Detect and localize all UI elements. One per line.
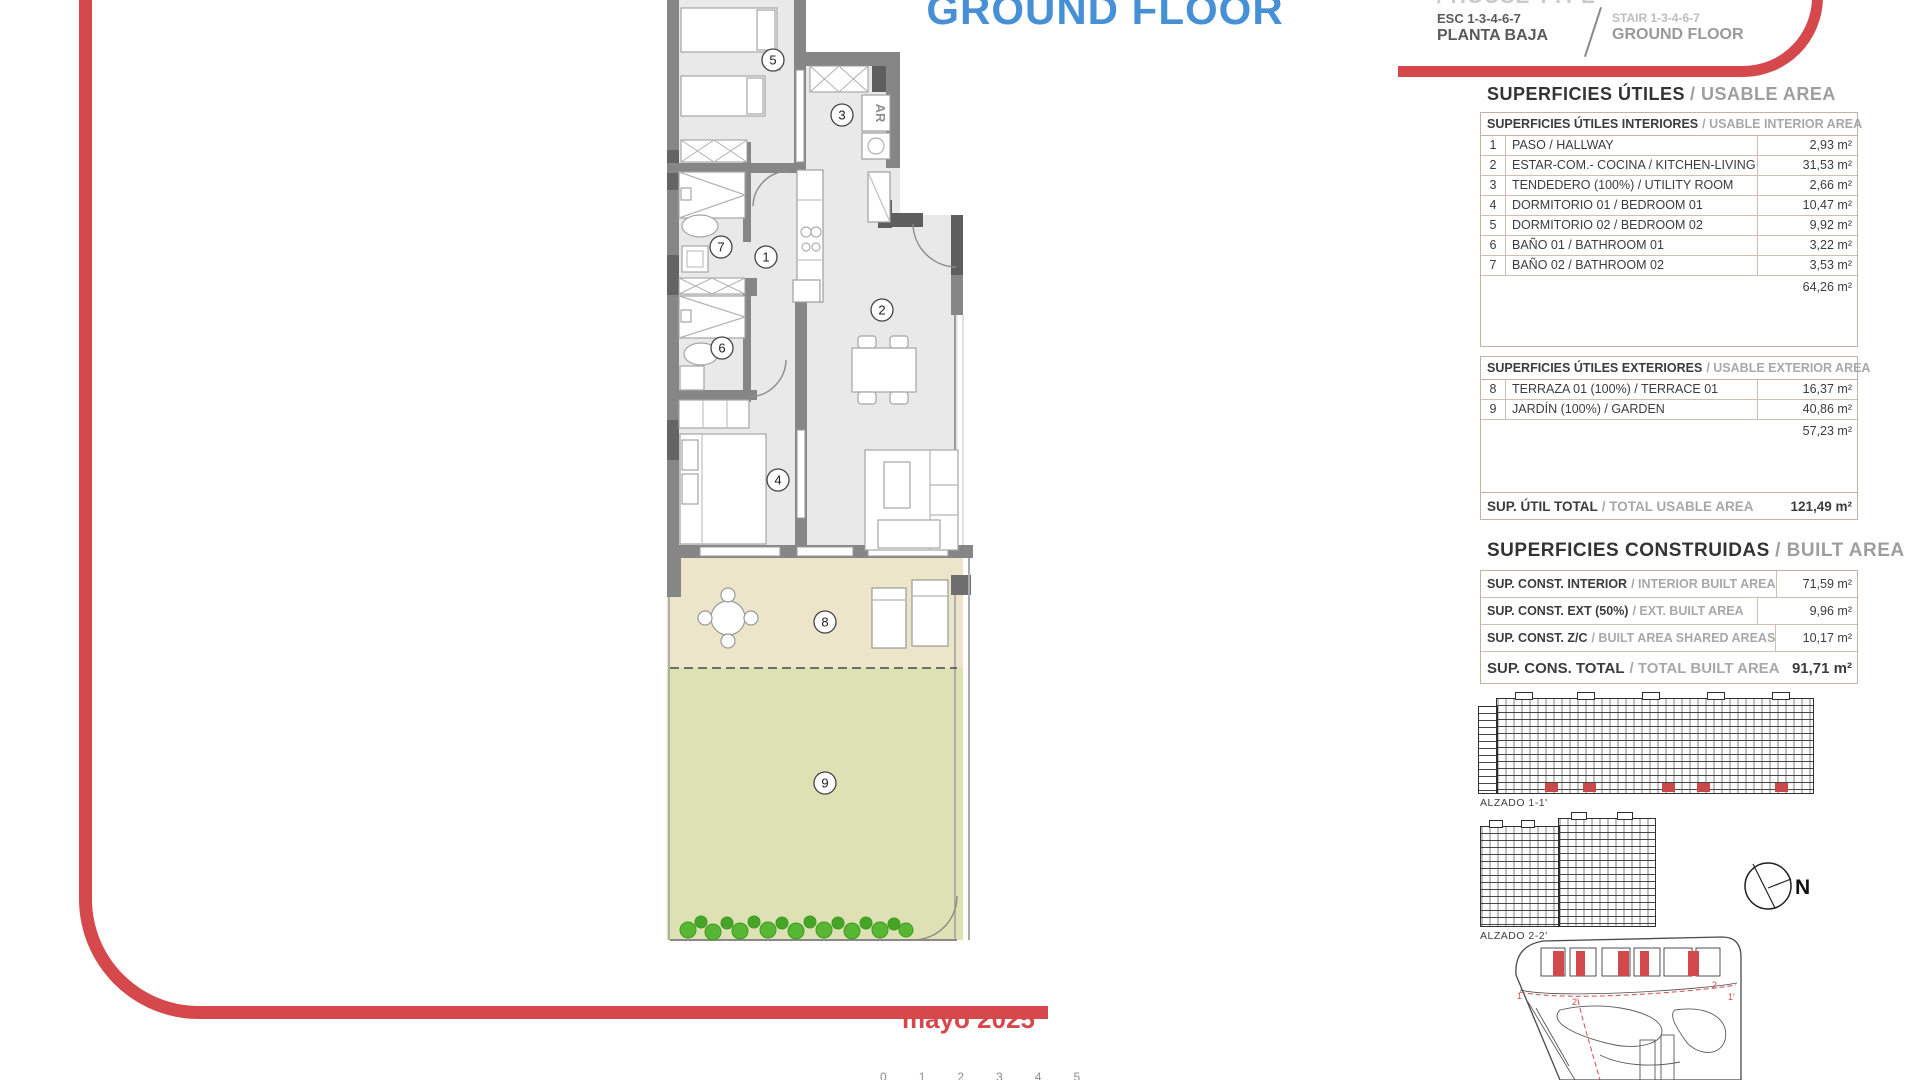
svg-text:1: 1 — [1517, 991, 1522, 1001]
table-row: SUP. CONST. EXT (50%)/ EXT. BUILT AREA9,… — [1481, 598, 1857, 625]
date-stamp: mayo 2025 — [790, 1004, 1035, 1035]
highlighted-unit — [1697, 783, 1710, 792]
appliance-label: AR — [873, 104, 888, 123]
north-label: N — [1795, 876, 1810, 899]
planta-baja-label: PLANTA BAJA — [1437, 27, 1548, 45]
svg-text:2': 2' — [1572, 997, 1579, 1007]
highlighted-unit — [1662, 783, 1675, 792]
table-row: 9JARDÍN (100%) / GARDEN40,86 m² — [1481, 400, 1857, 420]
elevation-1-label: ALZADO 1-1' — [1480, 797, 1548, 809]
exterior-subtotal: 57,23 m² — [1481, 420, 1857, 442]
stair-block-en: STAIR 1-3-4-6-7 GROUND FLOOR — [1612, 12, 1744, 44]
usable-interior-header: SUPERFICIES ÚTILES INTERIORES / USABLE I… — [1481, 113, 1857, 136]
table-row: 4DORMITORIO 01 / BEDROOM 0110,47 m² — [1481, 196, 1857, 216]
esc-label: ESC 1-3-4-6-7 — [1437, 12, 1548, 27]
elevation-1-facade — [1496, 698, 1814, 794]
table-row: 2ESTAR-COM.- COCINA / KITCHEN-LIVING31,5… — [1481, 156, 1857, 176]
built-total-row: SUP. CONS. TOTAL / TOTAL BUILT AREA 91,7… — [1481, 652, 1857, 685]
plan-sheet: 1B / HOUSE TYPE GROUND FLOOR ESC 1-3-4-6… — [0, 0, 1920, 1080]
usable-exterior-header: SUPERFICIES ÚTILES EXTERIORES / USABLE E… — [1481, 357, 1857, 380]
table-row: 8TERRAZA 01 (100%) / TERRACE 0116,37 m² — [1481, 380, 1857, 400]
svg-text:6: 6 — [718, 341, 725, 356]
north-compass-icon: N — [1735, 855, 1820, 917]
usable-exterior-table: SUPERFICIES ÚTILES EXTERIORES / USABLE E… — [1480, 356, 1858, 520]
stair-block-es: ESC 1-3-4-6-7 PLANTA BAJA — [1437, 12, 1548, 45]
table-row: SUP. CONST. INTERIOR/ INTERIOR BUILT ARE… — [1481, 571, 1857, 598]
built-area-heading: SUPERFICIES CONSTRUIDAS / BUILT AREA — [1487, 540, 1905, 562]
svg-text:1': 1' — [1728, 992, 1735, 1002]
table-row: 5DORMITORIO 02 / BEDROOM 029,92 m² — [1481, 216, 1857, 236]
site-plan: 1 2' 2 1' — [1500, 930, 1780, 1080]
house-type-label-cut: / HOUSE TYPE — [1437, 0, 1677, 9]
svg-text:2: 2 — [878, 303, 885, 318]
elevation-2-facade-left — [1480, 826, 1560, 927]
table-row: 3TENDEDERO (100%) / UTILITY ROOM2,66 m² — [1481, 176, 1857, 196]
usable-total-row: SUP. ÚTIL TOTAL / TOTAL USABLE AREA 121,… — [1481, 492, 1857, 519]
site-highlighted-units — [1553, 951, 1699, 976]
svg-text:2: 2 — [1712, 980, 1717, 990]
svg-text:1: 1 — [762, 250, 769, 265]
elevation-2-facade-right — [1558, 818, 1656, 927]
usable-area-heading: SUPERFICIES ÚTILES / USABLE AREA — [1487, 84, 1836, 105]
svg-text:9: 9 — [821, 776, 828, 791]
garden-area — [667, 668, 963, 940]
interior-subtotal: 64,26 m² — [1481, 276, 1857, 298]
svg-text:4: 4 — [774, 473, 781, 488]
table-row: SUP. CONST. Z/C/ BUILT AREA SHARED AREAS… — [1481, 625, 1857, 652]
scale-bar: 01 23 45 — [880, 1070, 1080, 1080]
floor-plan: AR — [640, 0, 985, 960]
svg-text:3: 3 — [838, 108, 845, 123]
ground-floor-label: GROUND FLOOR — [1612, 26, 1744, 44]
svg-text:8: 8 — [821, 615, 828, 630]
site-paths — [1528, 1002, 1726, 1080]
highlighted-unit — [1545, 783, 1558, 792]
highlighted-unit — [1775, 783, 1788, 792]
highlighted-unit — [1583, 783, 1596, 792]
table-row: 6BAÑO 01 / BATHROOM 013,22 m² — [1481, 236, 1857, 256]
elevation-1-annex — [1478, 706, 1498, 794]
stair-label: STAIR 1-3-4-6-7 — [1612, 12, 1744, 26]
built-area-table: SUP. CONST. INTERIOR/ INTERIOR BUILT ARE… — [1480, 570, 1858, 684]
table-row: 1PASO / HALLWAY2,93 m² — [1481, 136, 1857, 156]
svg-text:7: 7 — [717, 240, 724, 255]
usable-interior-table: SUPERFICIES ÚTILES INTERIORES / USABLE I… — [1480, 112, 1858, 347]
kitchen-counter — [793, 170, 823, 302]
table-row: 7BAÑO 02 / BATHROOM 023,53 m² — [1481, 256, 1857, 276]
svg-text:5: 5 — [769, 53, 776, 68]
